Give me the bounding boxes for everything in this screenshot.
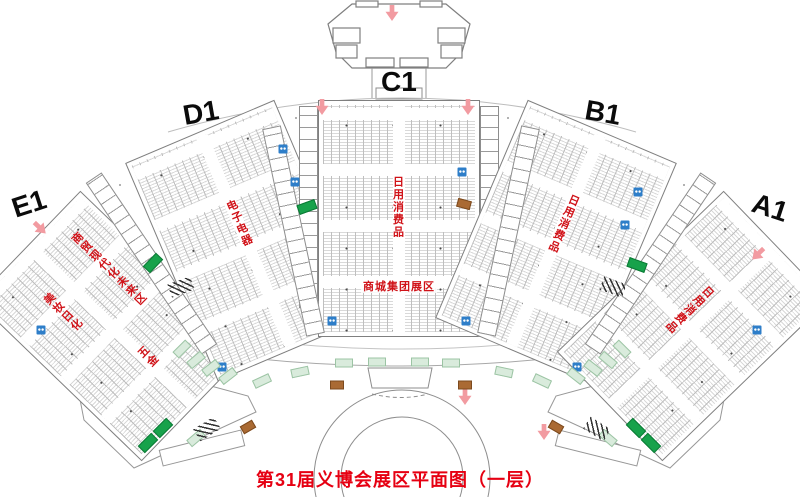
hall-letter-d1: D1 bbox=[180, 94, 221, 132]
hall-letter-b1: B1 bbox=[582, 94, 623, 132]
hall-letter-c1: C1 bbox=[381, 66, 417, 98]
floor-plan-map: 商贸现代化未来区 美妆日化 五金 电子电器 日用消费品 商城集团展区 日用消费品… bbox=[0, 0, 800, 497]
north-pavilion bbox=[328, 1, 470, 68]
zone-label: 日用消费品 bbox=[391, 176, 403, 239]
zone-label: 商城集团展区 bbox=[361, 281, 437, 293]
page-title: 第31届义博会展区平面图（一层） bbox=[0, 466, 800, 492]
